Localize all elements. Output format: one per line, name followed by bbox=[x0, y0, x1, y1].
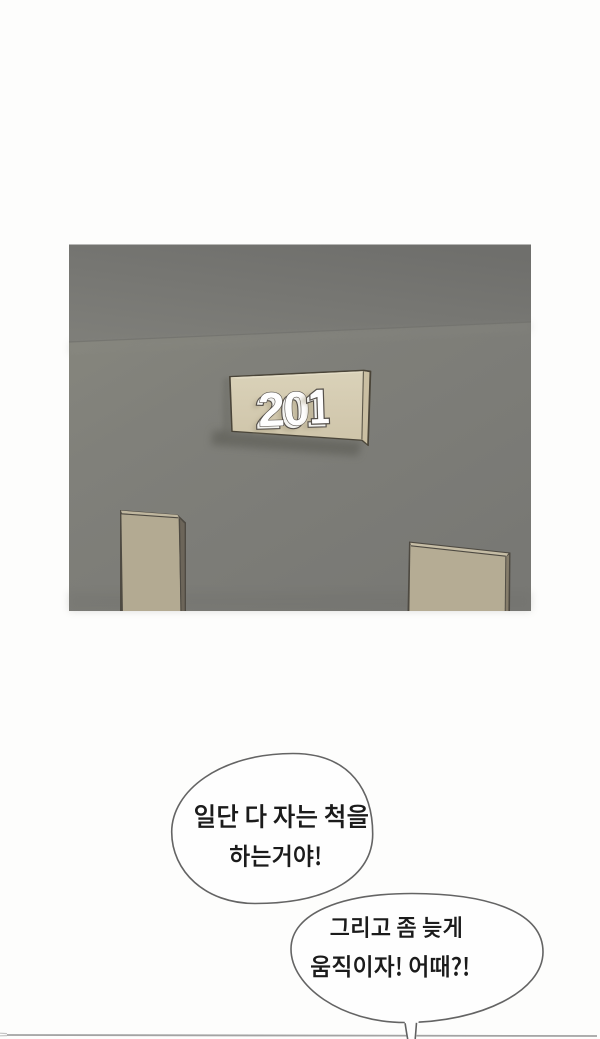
svg-text:20: 20 bbox=[257, 383, 309, 438]
